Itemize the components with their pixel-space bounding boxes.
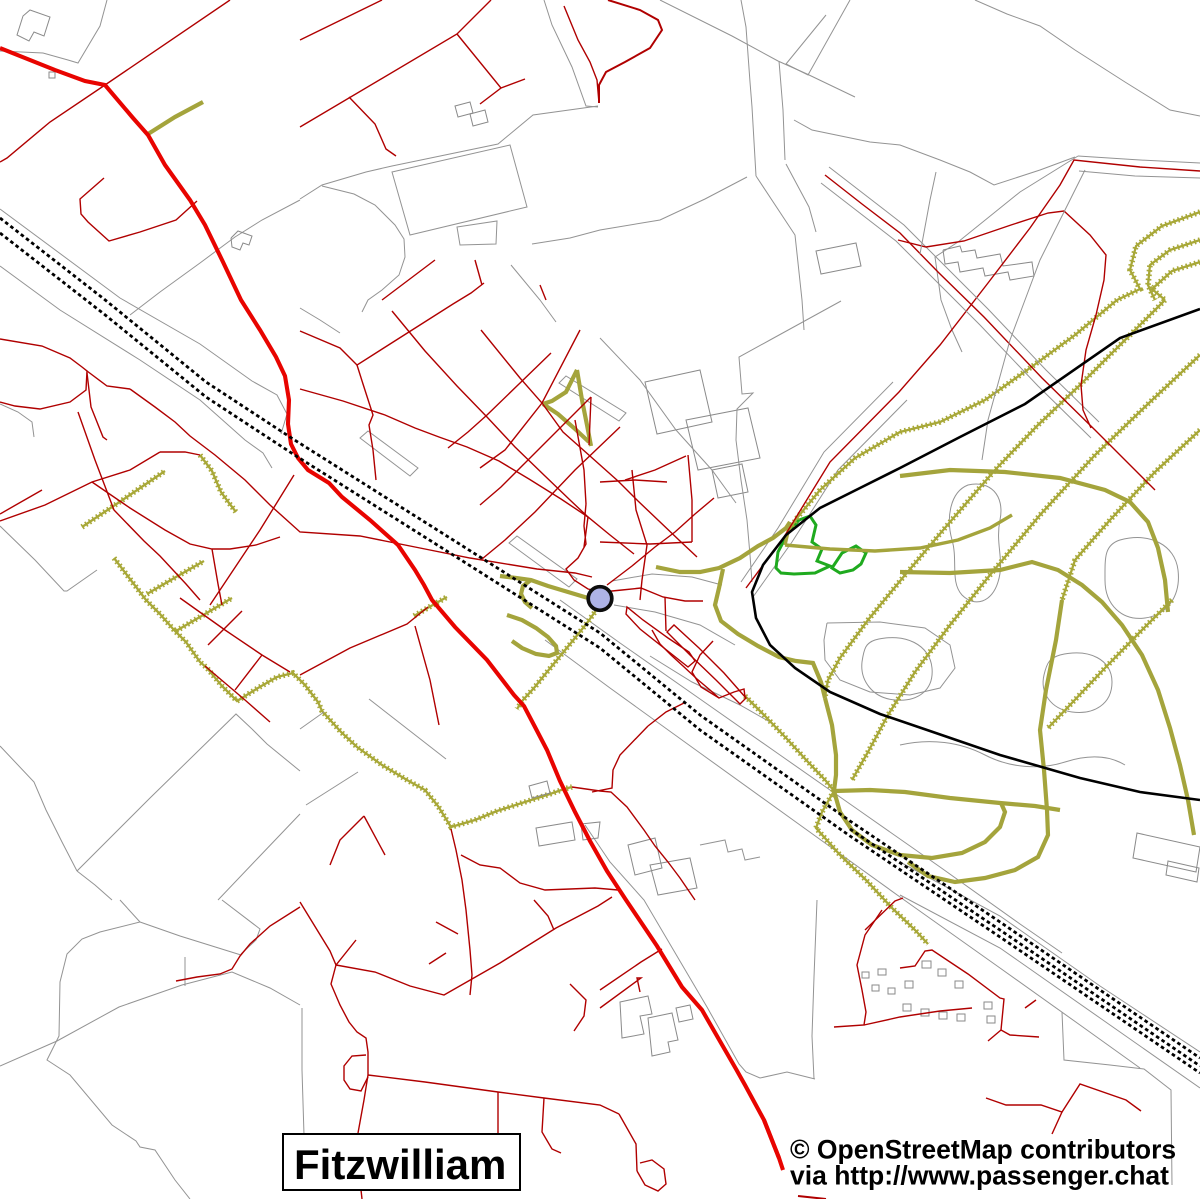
svg-text:Fitzwilliam: Fitzwilliam xyxy=(294,1141,506,1188)
svg-text:via http://www.passenger.chat: via http://www.passenger.chat xyxy=(790,1161,1169,1191)
